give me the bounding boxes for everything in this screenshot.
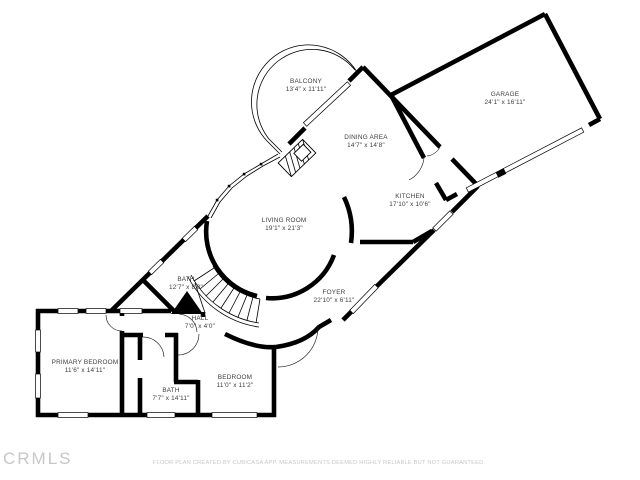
wall-living-west-arc [206, 221, 257, 296]
wall-bedroom-top-curve [225, 334, 276, 347]
window [212, 413, 257, 418]
room-dims: 24'1" x 16'11" [485, 99, 526, 107]
bedroom-door-swing [178, 334, 199, 355]
room-label-bath-lower: BATH 7'7" x 14'11" [152, 387, 189, 403]
window [147, 413, 175, 418]
room-name: KITCHEN [395, 193, 424, 200]
room-name: PRIMARY BEDROOM [52, 359, 119, 366]
room-dims: 7'7" x 14'11" [152, 395, 189, 403]
garage-kitchen-door-swing [409, 158, 424, 180]
room-name: BEDROOM [218, 374, 252, 381]
wall-triangle-junction [171, 291, 203, 314]
window-joint [216, 199, 219, 202]
door-swings [106, 147, 440, 367]
wall-living-east-arc [344, 197, 352, 243]
room-dims: 11'6" x 14'11" [52, 367, 119, 375]
wall-garage-ne [545, 14, 600, 119]
window [58, 413, 88, 418]
room-dims: 22'10" x 6'11" [314, 297, 355, 305]
bath-door-swing [143, 337, 164, 357]
wall-kitchen-ne [452, 159, 479, 187]
room-name: BATH [162, 387, 179, 394]
window [36, 330, 41, 352]
balcony-railing [251, 45, 357, 154]
dining-kitchen-door-swing [427, 147, 440, 156]
room-label-hall: HALL 7'0" x 4'0" [185, 315, 215, 331]
room-name: BALCONY [290, 78, 322, 85]
window [182, 226, 198, 241]
room-name: FOYER [322, 289, 345, 296]
floor-plan-drawing [0, 0, 640, 480]
window [58, 309, 78, 314]
room-label-garage: GARAGE 24'1" x 16'11" [485, 91, 526, 107]
room-name: BATH [177, 276, 194, 283]
window [120, 309, 142, 314]
disclaimer-text: FLOOR PLAN CREATED BY CUBICASA APP. MEAS… [153, 460, 485, 466]
window [433, 211, 453, 231]
primary-bedroom-door-swing [106, 315, 122, 331]
fireplace [278, 139, 316, 176]
living-curved-window [208, 154, 280, 218]
window [148, 259, 164, 274]
wall-kitchen-se [452, 186, 478, 212]
room-dims: 11'0" x 11'2" [217, 382, 254, 390]
room-label-foyer: FOYER 22'10" x 6'11" [314, 289, 355, 305]
window-joint [243, 173, 246, 176]
floor-plan-page: BALCONY 13'4" x 11'11" GARAGE 24'1" x 16… [0, 0, 640, 480]
wall-entry-stub [343, 311, 352, 320]
room-dims: 12'7" x 8'0" [169, 284, 203, 292]
crmls-logo: CRMLS [3, 449, 73, 469]
window-joint [228, 185, 231, 188]
window [36, 374, 41, 398]
walls-group [36, 14, 600, 417]
room-dims: 13'4" x 11'11" [286, 86, 326, 94]
wall-bath2-bedroom [174, 333, 198, 417]
room-label-balcony: BALCONY 13'4" x 11'11" [286, 78, 326, 94]
wall-foyer-end-curve [276, 320, 331, 347]
room-label-primary-bedroom: PRIMARY BEDROOM 11'6" x 14'11" [52, 359, 119, 375]
room-label-bath-upper: BATH 12'7" x 8'0" [169, 276, 203, 292]
room-name: GARAGE [491, 91, 520, 98]
room-label-kitchen: KITCHEN 17'10" x 10'6" [389, 193, 430, 209]
room-dims: 17'10" x 10'6" [389, 201, 430, 209]
wall-foyer-se [376, 230, 434, 287]
room-dims: 19'1" x 21'3" [262, 225, 307, 233]
room-name: DINING AREA [344, 134, 387, 141]
window-joint [260, 163, 263, 166]
wall-garage-nw [391, 14, 545, 95]
window [86, 309, 106, 314]
room-name: LIVING ROOM [262, 217, 307, 224]
room-dims: 14'7" x 14'8" [344, 142, 387, 150]
room-label-living-room: LIVING ROOM 19'1" x 21'3" [262, 217, 307, 233]
garage-door-line [466, 128, 584, 192]
room-label-bedroom: BEDROOM 11'0" x 11'2" [217, 374, 254, 390]
room-name: HALL [192, 315, 209, 322]
room-label-dining-area: DINING AREA 14'7" x 14'8" [344, 134, 387, 150]
room-dims: 7'0" x 4'0" [185, 323, 215, 331]
